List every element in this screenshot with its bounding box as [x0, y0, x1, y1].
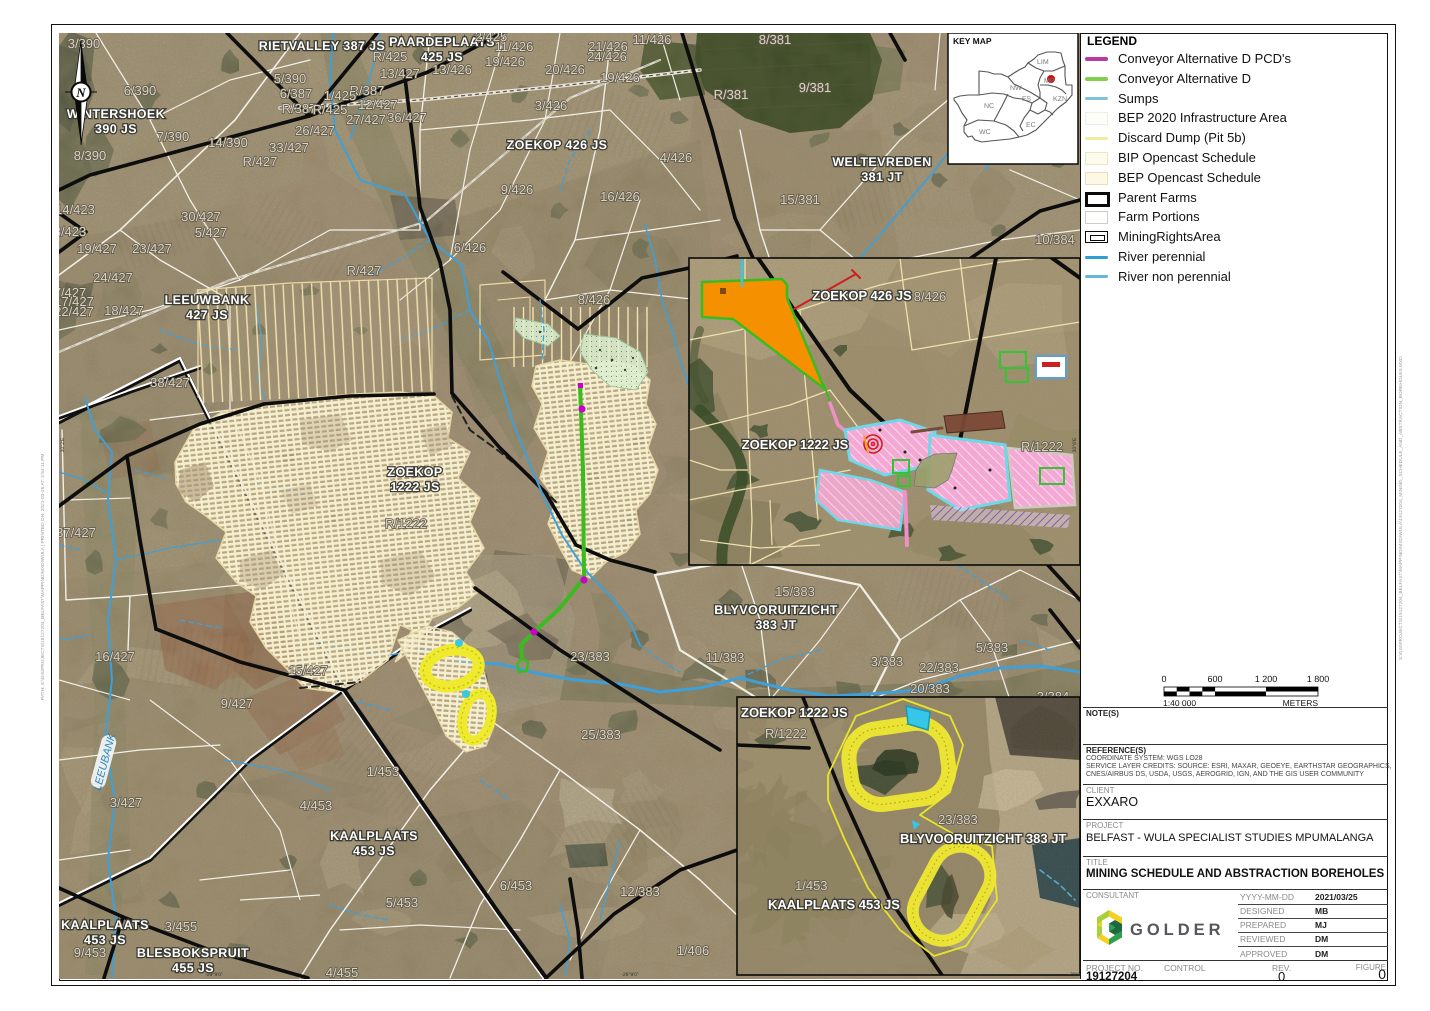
svg-text:5/390: 5/390 [274, 71, 307, 86]
svg-text:15/381: 15/381 [780, 192, 820, 207]
svg-text:R/381: R/381 [714, 87, 749, 102]
svg-text:5/383: 5/383 [976, 640, 1009, 655]
svg-text:LIM: LIM [1037, 59, 1049, 66]
svg-text:3/427: 3/427 [110, 795, 143, 810]
svg-text:NC: NC [984, 103, 994, 110]
svg-text:BLESBOKSPRUIT: BLESBOKSPRUIT [137, 946, 249, 960]
svg-text:1 200: 1 200 [1255, 674, 1278, 684]
svg-text:8/423: 8/423 [59, 224, 86, 239]
svg-text:KZN: KZN [1053, 96, 1067, 103]
svg-text:8/426: 8/426 [914, 289, 947, 304]
svg-text:R/1222: R/1222 [765, 726, 807, 741]
svg-text:8/381: 8/381 [759, 33, 792, 47]
svg-text:23/383: 23/383 [938, 812, 978, 827]
svg-text:23/427: 23/427 [132, 241, 172, 256]
svg-text:9/453: 9/453 [74, 945, 107, 960]
svg-text:19/426: 19/426 [600, 70, 640, 85]
svg-text:-29°9'0": -29°9'0" [1068, 972, 1080, 978]
svg-text:3/390: 3/390 [68, 36, 101, 51]
svg-text:11/426: 11/426 [495, 39, 534, 54]
svg-text:36/427: 36/427 [387, 110, 427, 125]
svg-text:NW: NW [1010, 85, 1022, 92]
svg-text:1/406: 1/406 [677, 943, 710, 958]
svg-text:ZOEKOP 426 JS: ZOEKOP 426 JS [507, 138, 608, 152]
svg-text:12/383: 12/383 [620, 884, 660, 899]
svg-text:15/427: 15/427 [288, 663, 328, 678]
svg-text:R/387: R/387 [282, 101, 317, 116]
svg-text:5/427: 5/427 [195, 225, 228, 240]
svg-text:13/426: 13/426 [432, 62, 472, 77]
svg-text:ZOEKOP: ZOEKOP [387, 465, 442, 479]
svg-text:KAALPLAATS 453 JS: KAALPLAATS 453 JS [768, 897, 900, 912]
svg-text:30/427: 30/427 [181, 209, 221, 224]
svg-text:N: N [75, 85, 86, 100]
svg-text:R/1222: R/1222 [1021, 439, 1063, 454]
svg-text:-29°9'0": -29°9'0" [621, 972, 639, 978]
svg-text:37/427: 37/427 [59, 525, 96, 540]
svg-text:1 800: 1 800 [1307, 674, 1330, 684]
svg-text:LEEUWBANK: LEEUWBANK [165, 293, 250, 307]
svg-text:WELTEVREDEN: WELTEVREDEN [832, 155, 931, 169]
svg-text:3/383: 3/383 [871, 654, 904, 669]
svg-text:EC: EC [1026, 122, 1036, 129]
svg-text:1/425: 1/425 [324, 88, 357, 103]
svg-text:25/383: 25/383 [581, 727, 621, 742]
svg-text:16/426: 16/426 [600, 189, 640, 204]
svg-text:KAALPLAATS: KAALPLAATS [330, 829, 418, 843]
svg-text:ZOEKOP 1222 JS: ZOEKOP 1222 JS [742, 437, 849, 452]
svg-text:R/425: R/425 [313, 102, 348, 117]
svg-text:8/390: 8/390 [74, 148, 107, 163]
svg-text:KAALPLAATS: KAALPLAATS [61, 918, 149, 932]
svg-text:22/383: 22/383 [919, 660, 959, 675]
svg-text:11/426: 11/426 [633, 33, 672, 47]
svg-text:381 JT: 381 JT [861, 170, 902, 184]
svg-text:BLYVOORUITZICHT 383 JT: BLYVOORUITZICHT 383 JT [900, 831, 1066, 846]
svg-text:4/426: 4/426 [660, 150, 693, 165]
svg-text:27/427: 27/427 [346, 112, 386, 127]
svg-text:15/383: 15/383 [775, 584, 815, 599]
svg-text:20/426: 20/426 [545, 62, 585, 77]
svg-text:23/383: 23/383 [570, 649, 610, 664]
svg-text:5/453: 5/453 [386, 895, 419, 910]
svg-text:7/390: 7/390 [157, 129, 190, 144]
svg-text:FS: FS [1022, 96, 1031, 103]
svg-text:R/427: R/427 [347, 263, 382, 278]
svg-text:16/427: 16/427 [95, 649, 135, 664]
svg-text:11/383: 11/383 [706, 650, 745, 665]
svg-text:9/426: 9/426 [501, 182, 534, 197]
svg-text:26/427: 26/427 [295, 123, 335, 138]
svg-text:0: 0 [1161, 674, 1166, 684]
svg-text:4/453: 4/453 [300, 798, 333, 813]
svg-text:1/453: 1/453 [367, 764, 400, 779]
svg-text:19/426: 19/426 [485, 54, 525, 69]
svg-text:18/427: 18/427 [104, 303, 144, 318]
svg-text:24/426: 24/426 [587, 49, 627, 64]
svg-text:19/427: 19/427 [77, 241, 117, 256]
svg-text:427 JS: 427 JS [186, 308, 228, 322]
svg-text:R/1222: R/1222 [385, 516, 427, 531]
svg-text:BLYVOORUITZICHT: BLYVOORUITZICHT [714, 603, 838, 617]
svg-text:6/387: 6/387 [280, 86, 313, 101]
svg-text:R/427: R/427 [243, 154, 278, 169]
svg-text:10/384: 10/384 [1035, 232, 1075, 247]
svg-text:MP: MP [1044, 78, 1055, 85]
svg-text:GOLDER: GOLDER [1130, 921, 1225, 939]
svg-text:20/383: 20/383 [910, 681, 950, 696]
svg-text:3/426: 3/426 [535, 98, 568, 113]
svg-text:9/381: 9/381 [799, 80, 832, 95]
svg-text:453 JS: 453 JS [353, 844, 395, 858]
svg-text:600: 600 [1207, 674, 1222, 684]
svg-text:30°2'E: 30°2'E [60, 437, 66, 452]
svg-text:38/427: 38/427 [150, 375, 190, 390]
svg-text:22/427: 22/427 [59, 304, 94, 319]
svg-text:ZOEKOP 426 JS: ZOEKOP 426 JS [812, 288, 912, 303]
svg-text:8/426: 8/426 [578, 292, 611, 307]
svg-text:6/426: 6/426 [454, 240, 487, 255]
svg-text:33/427: 33/427 [269, 140, 309, 155]
svg-text:14/423: 14/423 [59, 202, 95, 217]
svg-text:WC: WC [979, 129, 991, 136]
svg-text:6/453: 6/453 [500, 878, 533, 893]
svg-text:390 JS: 390 JS [95, 122, 137, 136]
svg-text:RIETVALLEY 387 JS: RIETVALLEY 387 JS [259, 39, 386, 53]
svg-text:3/455: 3/455 [165, 919, 198, 934]
svg-text:30°6'E: 30°6'E [1072, 437, 1078, 452]
svg-text:4/455: 4/455 [326, 965, 359, 979]
svg-text:-29°9'0": -29°9'0" [205, 972, 223, 978]
svg-text:ZOEKOP 1222 JS: ZOEKOP 1222 JS [741, 705, 848, 720]
svg-text:14/390: 14/390 [208, 135, 248, 150]
svg-text:13/427: 13/427 [380, 66, 420, 81]
svg-text:1222 JS: 1222 JS [390, 480, 439, 494]
svg-text:383 JT: 383 JT [755, 618, 796, 632]
svg-text:6/390: 6/390 [124, 83, 157, 98]
svg-text:9/427: 9/427 [221, 696, 254, 711]
svg-text:24/427: 24/427 [93, 270, 133, 285]
svg-text:KEY MAP: KEY MAP [953, 36, 992, 46]
svg-text:R/425: R/425 [373, 49, 408, 64]
svg-text:1/453: 1/453 [795, 878, 828, 893]
